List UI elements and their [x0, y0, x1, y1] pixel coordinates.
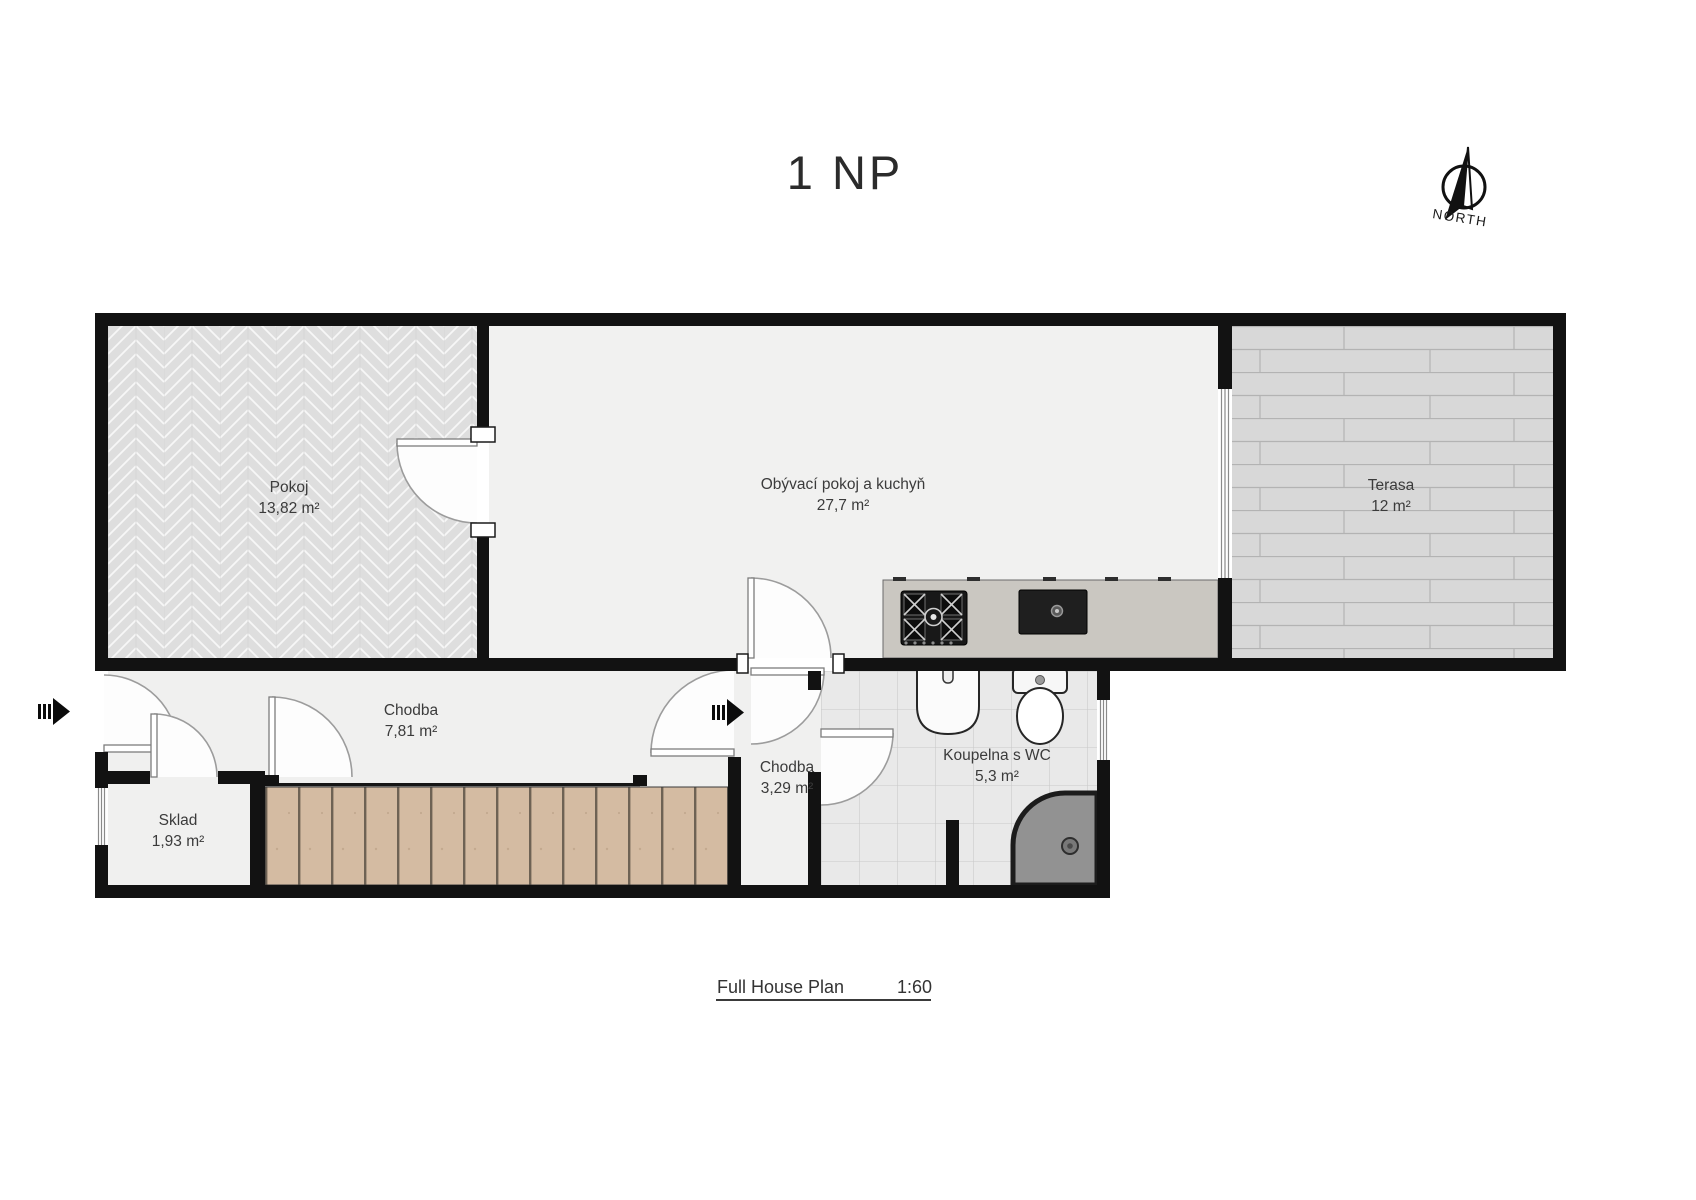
room-label-koupelna: Koupelna s WC [943, 747, 1051, 764]
north-label: NORTH [1432, 206, 1489, 229]
room-label-chodba1: Chodba [384, 702, 439, 719]
room-area-sklad: 1,93 m² [152, 833, 205, 850]
bathroom-sink-icon [917, 666, 979, 734]
plan-footer: Full House Plan 1:60 [716, 977, 932, 1001]
entry-arrow-icon [38, 698, 70, 725]
plan-scale-label: 1:60 [897, 977, 932, 997]
staircase [265, 783, 728, 885]
floor-plan-page: NORTH 1 NP Pokoj 13,82 m² Obývací pokoj … [0, 0, 1696, 1200]
room-area-chodba2: 3,29 m² [761, 780, 814, 797]
window-sklad [95, 788, 108, 845]
window-bathroom [1097, 700, 1110, 760]
room-label-living: Obývací pokoj a kuchyň [761, 476, 926, 493]
room-area-koupelna: 5,3 m² [975, 768, 1019, 785]
footer-underline [716, 999, 931, 1001]
room-area-chodba1: 7,81 m² [385, 723, 438, 740]
sliding-door-terrace [1218, 389, 1232, 578]
room-label-chodba2: Chodba [760, 759, 815, 776]
north-compass-icon: NORTH [1432, 147, 1489, 230]
page-title: 1 NP [787, 146, 904, 199]
toilet-icon [1013, 668, 1067, 744]
room-area-pokoj: 13,82 m² [258, 500, 319, 517]
room-area-terasa: 12 m² [1371, 498, 1411, 515]
floor-plan-svg: NORTH 1 NP Pokoj 13,82 m² Obývací pokoj … [0, 0, 1696, 1200]
room-label-terasa: Terasa [1368, 477, 1415, 494]
gas-hob-icon [901, 591, 967, 645]
kitchen-sink-icon [1019, 590, 1087, 634]
room-area-living: 27,7 m² [817, 497, 870, 514]
room-label-pokoj: Pokoj [270, 479, 309, 496]
plan-name-label: Full House Plan [717, 977, 844, 997]
room-label-sklad: Sklad [159, 812, 198, 829]
